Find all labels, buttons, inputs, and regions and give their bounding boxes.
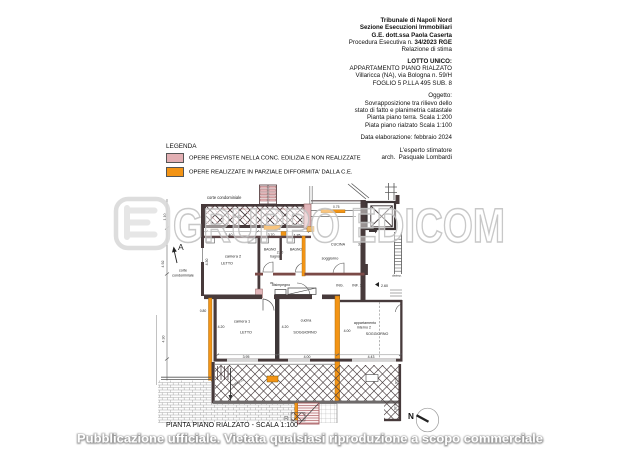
svg-text:GRUPPO EDICOM: GRUPPO EDICOM (173, 200, 505, 253)
svg-text:4.30: 4.30 (205, 259, 209, 266)
svg-text:condominiale: condominiale (172, 274, 194, 278)
svg-text:LETTO: LETTO (240, 331, 252, 335)
svg-text:4.43: 4.43 (368, 355, 375, 359)
svg-text:bagno: bagno (270, 255, 280, 259)
svg-text:4.30: 4.30 (162, 336, 166, 343)
svg-text:4.92: 4.92 (161, 261, 165, 268)
svg-text:cucina: cucina (301, 319, 313, 323)
svg-text:disimpegno: disimpegno (272, 283, 290, 287)
svg-text:SOGGIORNO: SOGGIORNO (293, 331, 316, 335)
svg-text:camera 1: camera 1 (234, 319, 250, 324)
svg-text:corte: corte (179, 269, 187, 273)
svg-text:09: 09 (270, 281, 274, 285)
svg-text:4.20: 4.20 (218, 325, 225, 329)
svg-text:SOGGIORNO: SOGGIORNO (366, 332, 389, 336)
svg-text:Pubblicazione ufficiale. Vieta: Pubblicazione ufficiale. Vietata qualsia… (77, 432, 543, 446)
svg-text:0.80: 0.80 (200, 309, 207, 313)
svg-text:1.00: 1.00 (394, 378, 398, 384)
svg-text:ING.: ING. (336, 284, 343, 288)
svg-text:4.20: 4.20 (282, 325, 289, 329)
svg-text:soggiorno: soggiorno (322, 257, 339, 261)
svg-text:disimp.: disimp. (392, 274, 402, 278)
svg-text:2.60: 2.60 (381, 284, 388, 288)
svg-text:3.95: 3.95 (243, 355, 250, 359)
svg-text:camera 2: camera 2 (225, 254, 241, 259)
svg-text:1.50: 1.50 (393, 404, 397, 410)
svg-text:interno 2: interno 2 (357, 326, 371, 330)
svg-text:INF. 1: INF. 1 (352, 284, 361, 288)
svg-text:N: N (408, 412, 414, 421)
svg-text:appartamento: appartamento (354, 321, 376, 325)
svg-text:4.00: 4.00 (304, 355, 311, 359)
svg-text:LETTO: LETTO (221, 262, 233, 266)
svg-text:4.00: 4.00 (344, 329, 351, 333)
